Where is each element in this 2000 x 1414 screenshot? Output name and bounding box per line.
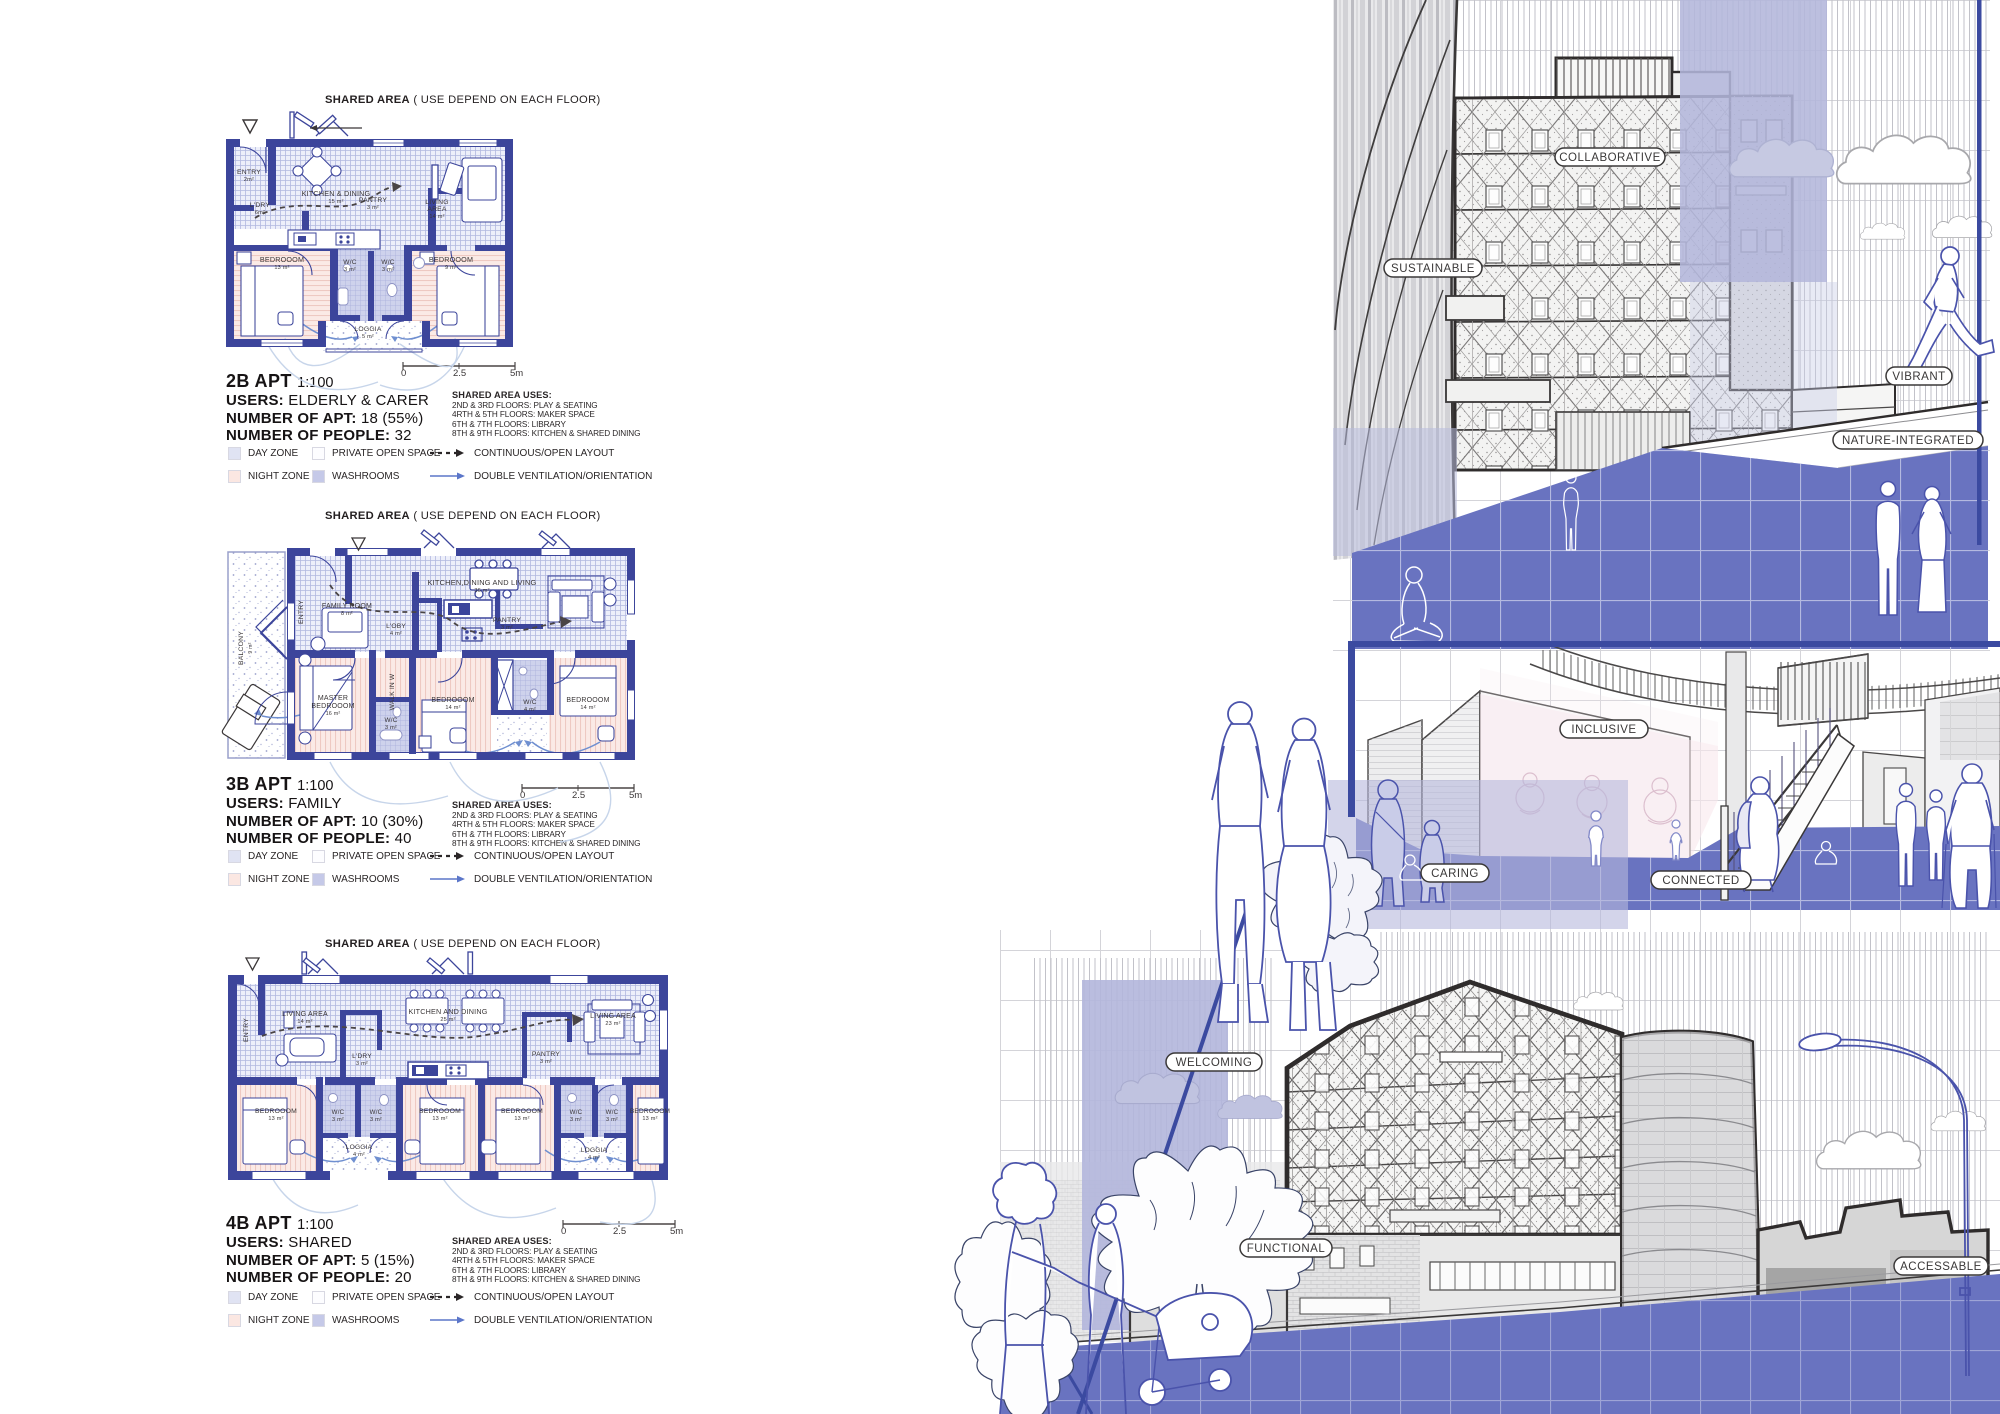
- svg-text:VIBRANT: VIBRANT: [1892, 371, 1945, 383]
- svg-text:FUNCTIONAL: FUNCTIONAL: [1247, 1243, 1326, 1255]
- svg-text:NATURE-INTEGRATED: NATURE-INTEGRATED: [1842, 435, 1974, 447]
- svg-text:SUSTAINABLE: SUSTAINABLE: [1391, 263, 1475, 275]
- svg-text:ACCESSABLE: ACCESSABLE: [1900, 1261, 1982, 1273]
- svg-text:CARING: CARING: [1431, 868, 1479, 880]
- svg-text:WELCOMING: WELCOMING: [1176, 1057, 1253, 1069]
- svg-text:COLLABORATIVE: COLLABORATIVE: [1559, 152, 1661, 164]
- svg-text:CONNECTED: CONNECTED: [1662, 875, 1739, 887]
- svg-text:INCLUSIVE: INCLUSIVE: [1571, 724, 1636, 736]
